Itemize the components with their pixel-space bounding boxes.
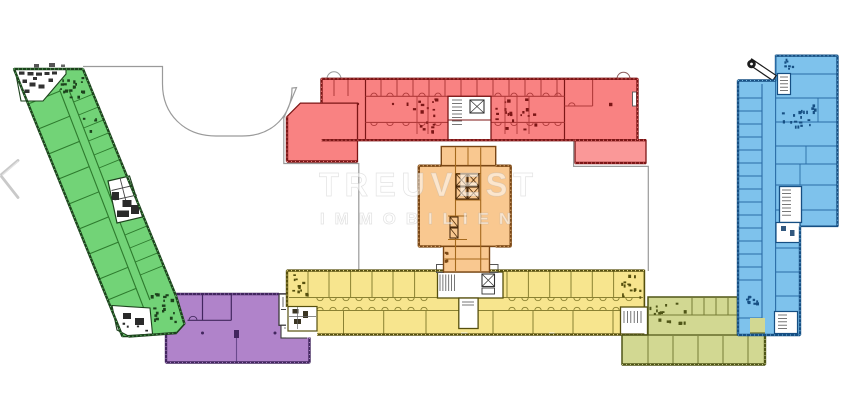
svg-text:TREUVEST: TREUVEST	[319, 166, 539, 203]
svg-text:IMMOBILIEN: IMMOBILIEN	[320, 211, 521, 228]
